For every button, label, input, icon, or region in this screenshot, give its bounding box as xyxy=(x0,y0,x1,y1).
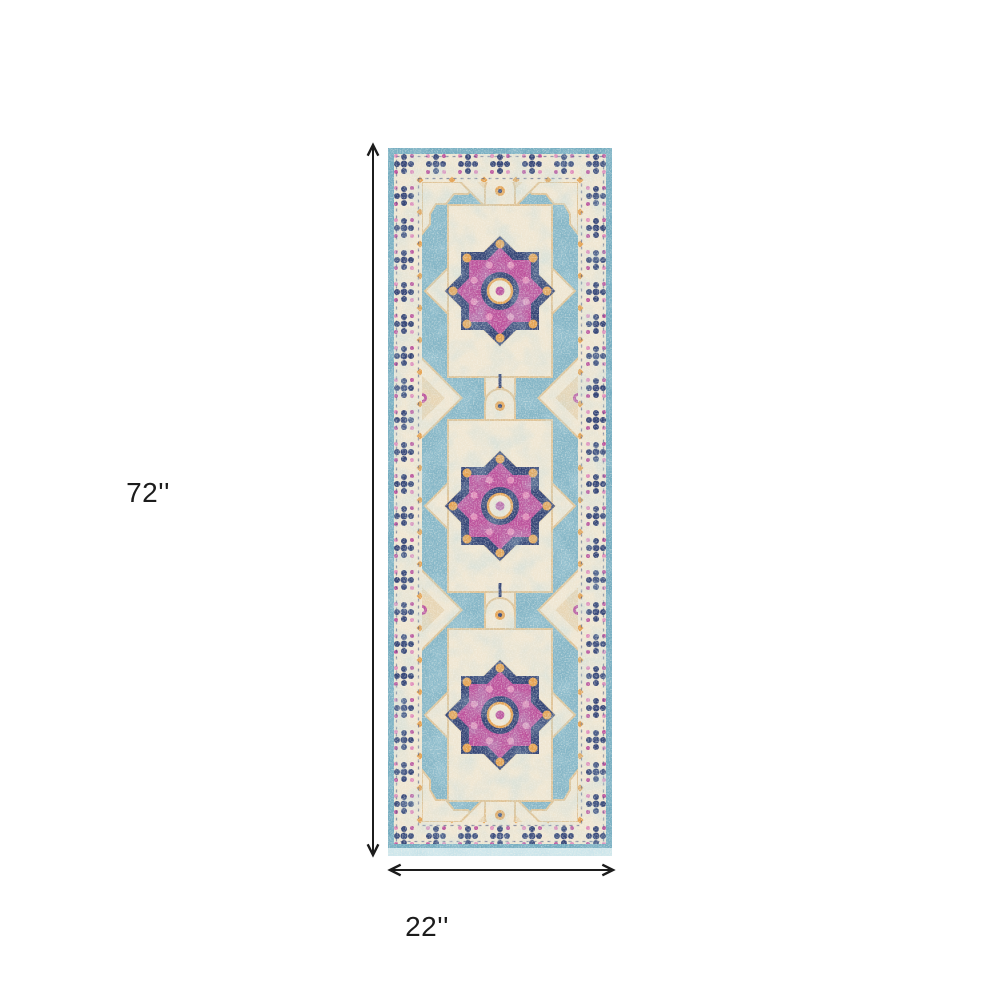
width-dimension-label: 22'' xyxy=(387,911,467,943)
product-image-canvas: 72'' 22'' xyxy=(0,0,1000,1000)
height-dimension-label: 72'' xyxy=(108,477,188,509)
